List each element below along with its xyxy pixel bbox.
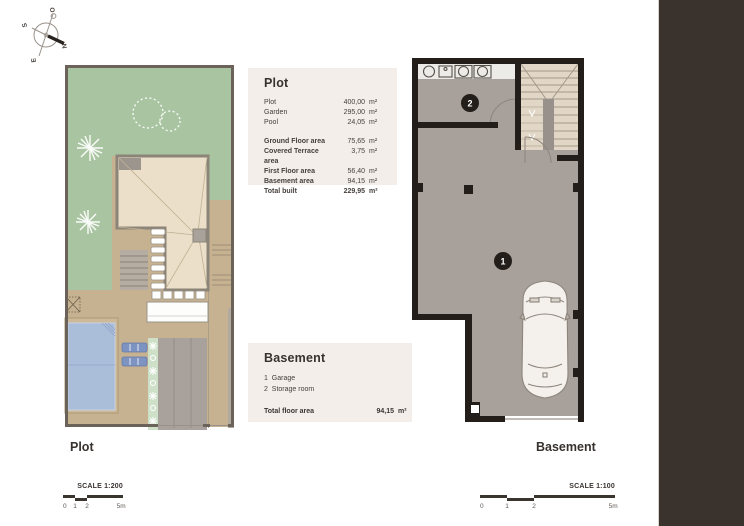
column (464, 185, 473, 194)
basement-legend: 1 Garage 2 Storage room (264, 373, 429, 395)
page-side-strip (658, 0, 744, 526)
scale-bar-graphic (63, 495, 123, 501)
table-row: First Floor area56,40m² (264, 167, 381, 177)
rooftop-unit (193, 229, 206, 242)
scale-ticks: 0 1 2 5m (480, 503, 615, 512)
table-row: Basement area94,15m² (264, 177, 381, 187)
plot-areas-table: Plot400,00m² Garden295,00m² Pool24,05m² … (264, 98, 381, 197)
plot-site-plan (62, 62, 237, 430)
compass-rose-icon: O S E N (22, 6, 78, 64)
room-badge-garage: 1 (494, 252, 512, 270)
driveway (158, 338, 207, 430)
spa (66, 297, 80, 312)
table-row: Covered Terrace area3,75m² (264, 147, 381, 167)
svg-text:2: 2 (467, 99, 472, 109)
table-row: Ground Floor area75,65m² (264, 137, 381, 147)
basement-caption: Basement (536, 440, 596, 454)
legend-item: 2 Storage room (264, 384, 429, 395)
scale-text: SCALE 1:200 (63, 483, 123, 490)
garden-right (208, 156, 234, 200)
wall-recess (471, 405, 479, 413)
plot-info-title: Plot (264, 76, 381, 90)
roof-panel (119, 158, 141, 170)
plan-sheet: O S E N (0, 0, 744, 526)
covered-terrace (147, 302, 208, 322)
scale-text: SCALE 1:100 (480, 483, 615, 490)
pool (68, 323, 115, 410)
exterior-stairs (120, 250, 148, 290)
table-row: Pool24,05m² (264, 118, 381, 128)
scale-ticks: 0 1 2 5m (63, 503, 123, 512)
scale-bar-basement: SCALE 1:100 0 1 2 5m (480, 483, 615, 512)
scale-bar-graphic (480, 495, 615, 501)
compass-south-label: S (22, 22, 29, 28)
basement-info-title: Basement (264, 351, 429, 365)
planting-strip (148, 338, 158, 430)
terrace-pergola-row (152, 291, 205, 299)
svg-text:1: 1 (500, 257, 505, 267)
car-icon (520, 281, 570, 398)
table-row-total: Total built229,95m² (264, 187, 381, 197)
plot-info-box: Plot Plot400,00m² Garden295,00m² Pool24,… (248, 68, 397, 185)
room-badge-storage: 2 (461, 94, 479, 112)
plot-caption: Plot (70, 440, 94, 454)
compass-west-label: O (49, 7, 57, 13)
pergola-slats (151, 229, 165, 289)
table-row: Plot400,00m² (264, 98, 381, 108)
garage-door (505, 416, 578, 422)
laundry-counter (418, 64, 515, 79)
compass-east-label: E (30, 57, 38, 63)
table-row: Garden295,00m² (264, 108, 381, 118)
legend-item: 1 Garage (264, 373, 429, 384)
basement-total-row: Total floor area 94,15 m² (264, 408, 429, 415)
scale-bar-plot: SCALE 1:200 0 1 2 5m (63, 483, 123, 512)
basement-floor-plan: 2 1 (412, 58, 584, 422)
